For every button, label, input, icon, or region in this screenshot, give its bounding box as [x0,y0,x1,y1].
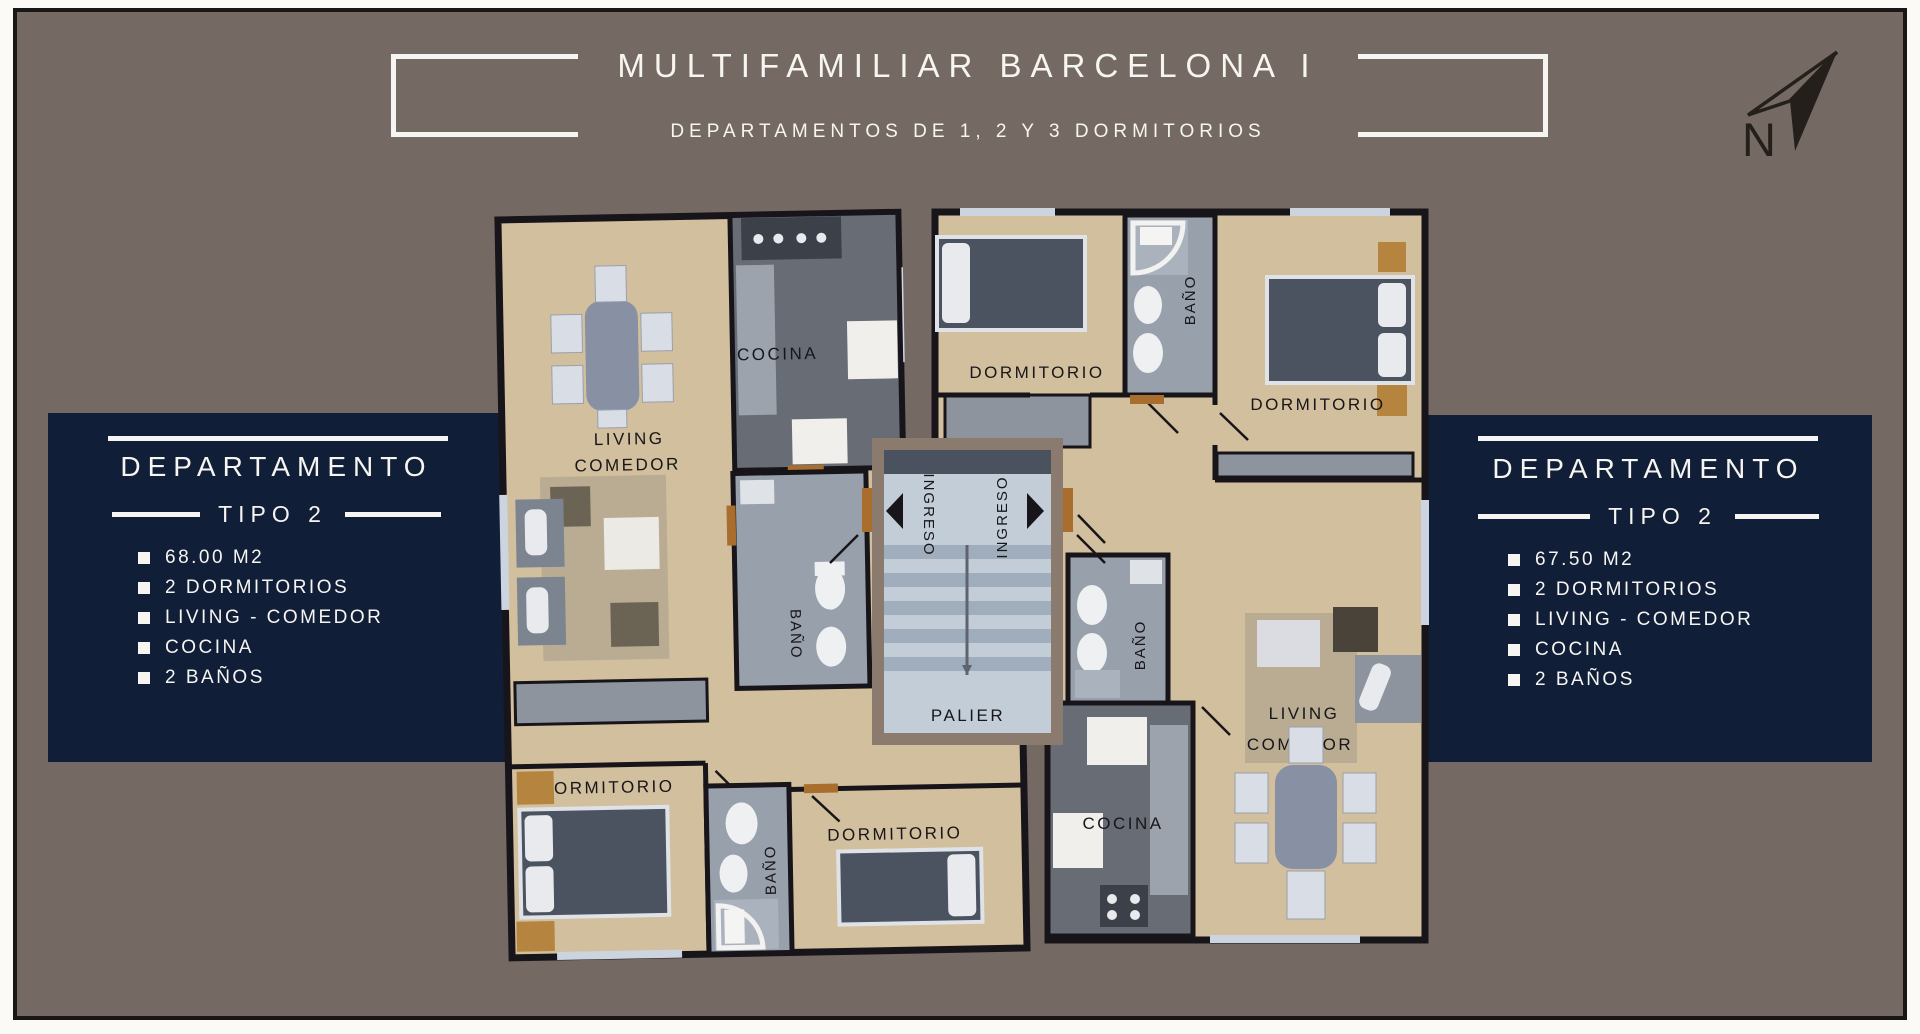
kitchen-counter [1150,725,1188,895]
list-item-label: 2 BAÑOS [1535,669,1635,691]
door-threshold [862,488,872,532]
list-item: 2 BAÑOS [1508,665,1753,695]
burner [1130,894,1140,904]
chair [552,365,584,404]
rug-patch [610,602,659,647]
room-label: BAÑO [786,609,804,660]
toilet-tank [815,561,845,576]
panel-subtitle-row: TIPO 2 [1425,503,1872,530]
chair [642,364,674,403]
cushion [525,509,548,555]
pillow [947,854,976,917]
right-info-panel: DEPARTAMENTO TIPO 2 67.50 M2 2 DORMITORI… [1425,415,1872,762]
dining-table [1275,765,1337,869]
panel-title: DEPARTAMENTO [1425,453,1872,485]
pillow [942,243,970,323]
chair [641,313,673,352]
north-arrow-icon: N [1736,38,1858,164]
bidet [1133,333,1163,373]
list-item-label: 2 DORMITORIOS [1535,579,1719,601]
panel-title: DEPARTAMENTO [48,451,505,483]
bidet [1077,633,1107,673]
sideboard [515,679,708,725]
panel-subtitle: TIPO 2 [1608,503,1717,530]
side-table [1333,607,1378,652]
burner [1107,894,1117,904]
toilet [1077,585,1107,625]
ingreso-label: INGRESO [920,473,937,556]
window [960,208,1055,216]
page-title: MULTIFAMILIAR BARCELONA I [488,47,1448,85]
list-item-label: 2 DORMITORIOS [165,577,349,599]
square-bullet-icon [1508,584,1520,596]
spec-list: 68.00 M2 2 DORMITORIOS LIVING - COMEDOR … [138,543,383,693]
kitchen-counter [792,418,848,464]
panel-rule [108,436,448,441]
square-bullet-icon [138,612,150,624]
coffee-table [604,517,660,570]
rule-segment [112,512,200,517]
square-bullet-icon [138,672,150,684]
chair [1235,823,1268,863]
list-item-label: LIVING - COMEDOR [1535,609,1753,631]
room-label: LIVING [594,429,665,449]
spec-list: 67.50 M2 2 DORMITORIOS LIVING - COMEDOR … [1508,545,1753,695]
list-item: 2 BAÑOS [138,663,383,693]
room-label: COMEDOR [574,454,681,475]
toilet [1134,286,1162,324]
nightstand [516,921,555,952]
ingreso-label: INGRESO [994,475,1011,558]
sink [1130,560,1162,584]
room-label: BAÑO [1182,275,1199,326]
sink [740,480,774,505]
left-info-panel: DEPARTAMENTO TIPO 2 68.00 M2 2 DORMITORI… [48,413,505,762]
shower-tray [724,909,745,943]
chair [598,410,627,429]
room-label: DORMITORIO [969,363,1104,382]
list-item: LIVING - COMEDOR [1508,605,1753,635]
room-label: BAÑO [762,844,780,895]
stove [1100,885,1148,927]
list-item-label: 2 BAÑOS [165,667,265,689]
list-item-label: COCINA [165,637,254,659]
kitchen-counter [1087,717,1147,765]
rule-segment [1735,514,1819,519]
door-threshold [726,505,736,545]
nightstand [517,771,555,805]
north-label: N [1742,113,1776,164]
list-item-label: COCINA [1535,639,1624,661]
panel-subtitle-row: TIPO 2 [48,501,505,528]
list-item: 68.00 M2 [138,543,383,573]
nightstand [1378,242,1406,272]
shower-tray [1140,227,1172,245]
square-bullet-icon [1508,554,1520,566]
palier-label: PALIER [931,706,1005,725]
list-item: LIVING - COMEDOR [138,603,383,633]
list-item: 2 DORMITORIOS [138,573,383,603]
pillow [525,866,554,913]
square-bullet-icon [138,642,150,654]
panel-rule [1478,436,1818,441]
list-item-label: 68.00 M2 [165,547,264,569]
pillow [1378,333,1406,377]
dresser [1217,453,1413,477]
window [1290,208,1390,216]
square-bullet-icon [1508,614,1520,626]
list-item: COCINA [138,633,383,663]
square-bullet-icon [1508,674,1520,686]
cushion [526,587,549,633]
window [1210,935,1360,943]
chair [1289,727,1323,763]
page-subtitle: DEPARTAMENTOS DE 1, 2 Y 3 DORMITORIOS [488,121,1448,143]
door-threshold [1063,488,1073,532]
list-item: 2 DORMITORIOS [1508,575,1753,605]
rule-segment [345,512,441,517]
door-threshold [804,784,838,794]
list-item: COCINA [1508,635,1753,665]
dining-table [585,300,640,411]
room-label: DORMITORIO [1250,395,1385,414]
chair [595,266,627,303]
room-label: DORMITORIO [539,777,675,799]
square-bullet-icon [1508,644,1520,656]
burner [1130,910,1140,920]
burner [1107,910,1117,920]
room-label: COCINA [737,344,818,365]
square-bullet-icon [138,582,150,594]
doormat [884,450,1051,474]
room-label: DORMITORIO [827,823,963,845]
panel-subtitle: TIPO 2 [218,501,327,528]
chair [1343,773,1376,813]
chair [551,314,583,353]
list-item-label: 67.50 M2 [1535,549,1634,571]
sofa [1257,620,1320,667]
list-item-label: LIVING - COMEDOR [165,607,383,629]
chair [1235,773,1268,813]
square-bullet-icon [138,552,150,564]
chair [1343,823,1376,863]
door-threshold [1130,395,1164,404]
fridge [847,320,898,379]
pillow [1378,283,1406,327]
room-label: LIVING [1269,704,1340,723]
kitchen-counter [736,265,777,416]
window [1421,500,1429,625]
rule-segment [1478,514,1590,519]
pillow [524,815,553,862]
list-item: 67.50 M2 [1508,545,1753,575]
room-label: COCINA [1082,814,1163,833]
shower [1075,670,1120,698]
chair [1287,871,1325,919]
floorplan-canvas: COCINA LIVING COMEDOR BAÑO DOR [490,205,1430,970]
room-label: BAÑO [1132,620,1149,671]
